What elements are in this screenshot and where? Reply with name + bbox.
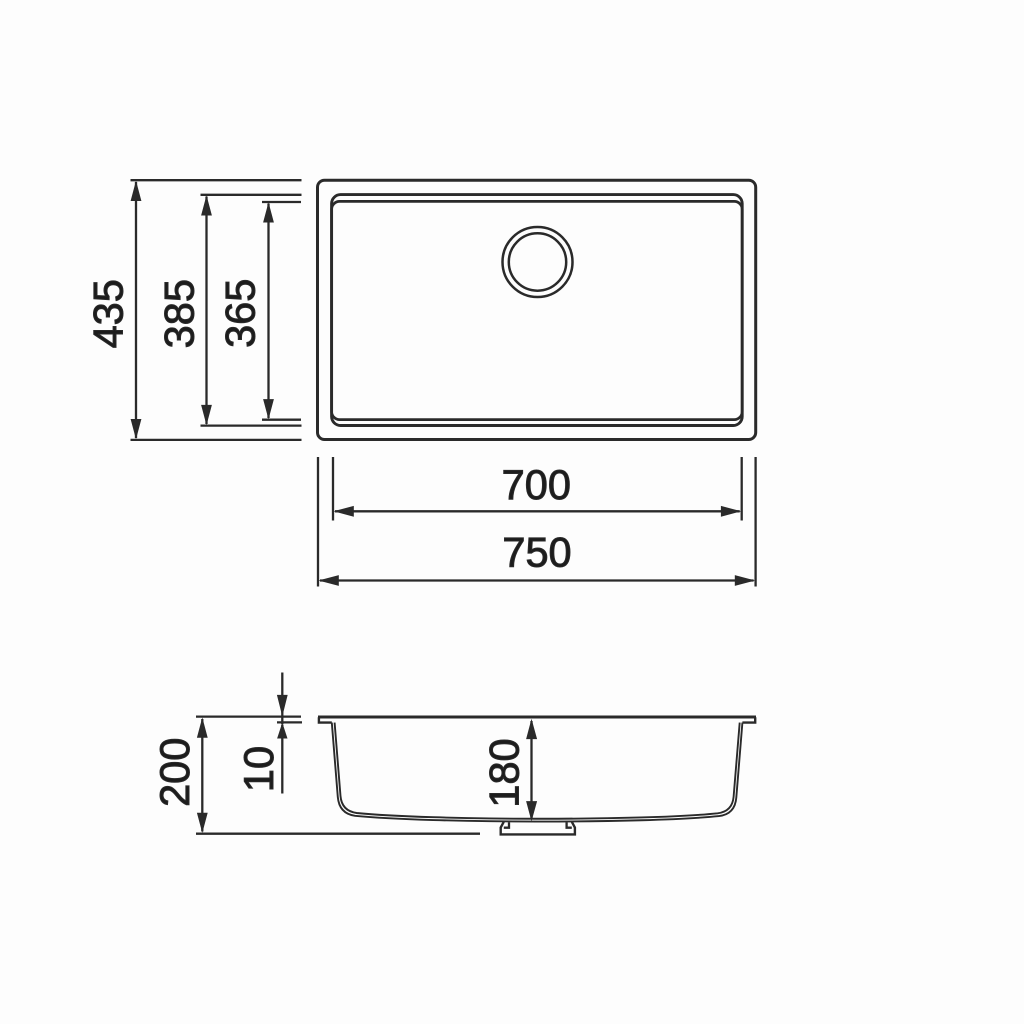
svg-text:200: 200 — [151, 738, 198, 807]
svg-text:365: 365 — [216, 279, 263, 348]
svg-text:750: 750 — [502, 528, 571, 575]
svg-text:385: 385 — [155, 279, 202, 348]
svg-text:180: 180 — [480, 738, 527, 807]
svg-text:10: 10 — [235, 746, 282, 792]
svg-text:435: 435 — [85, 279, 132, 348]
svg-text:700: 700 — [502, 461, 571, 508]
